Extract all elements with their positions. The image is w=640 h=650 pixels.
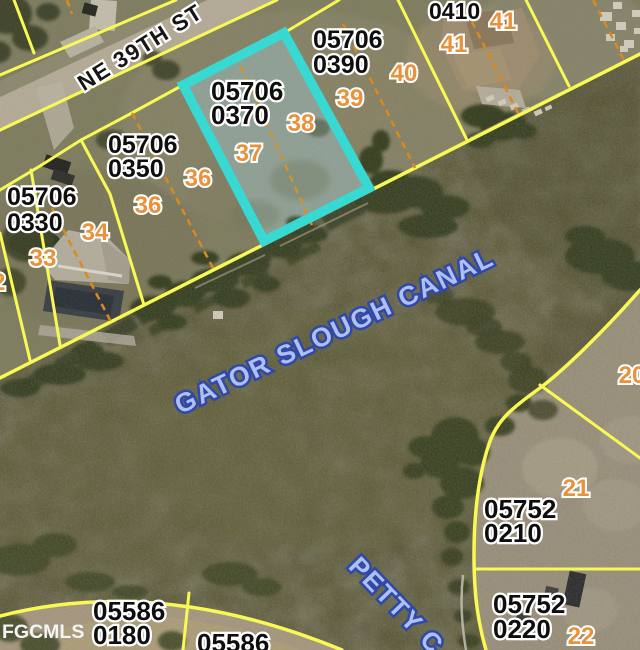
svg-text:0390: 0390	[313, 51, 369, 79]
svg-text:21: 21	[563, 475, 590, 502]
svg-text:FGCMLS: FGCMLS	[2, 621, 84, 643]
svg-text:33: 33	[30, 245, 57, 272]
svg-text:37: 37	[236, 140, 263, 167]
svg-text:41: 41	[490, 8, 517, 35]
svg-text:0330: 0330	[7, 209, 63, 237]
svg-text:0210: 0210	[484, 518, 542, 548]
svg-text:39: 39	[337, 85, 364, 112]
svg-text:38: 38	[288, 110, 315, 137]
svg-text:32: 32	[0, 269, 5, 296]
svg-text:0370: 0370	[211, 100, 269, 130]
svg-text:20: 20	[619, 362, 640, 389]
svg-text:36: 36	[185, 165, 212, 192]
svg-text:0410: 0410	[429, 0, 480, 24]
svg-text:05586: 05586	[197, 628, 269, 650]
svg-text:41: 41	[441, 31, 468, 58]
svg-text:05706: 05706	[7, 183, 77, 211]
svg-text:34: 34	[82, 219, 109, 246]
svg-text:0350: 0350	[108, 155, 164, 183]
svg-text:36: 36	[135, 192, 162, 219]
svg-text:22: 22	[568, 623, 595, 650]
svg-text:0220: 0220	[493, 614, 551, 644]
svg-text:0180: 0180	[93, 620, 151, 650]
svg-text:40: 40	[391, 60, 418, 87]
svg-text:05706: 05706	[313, 26, 383, 54]
